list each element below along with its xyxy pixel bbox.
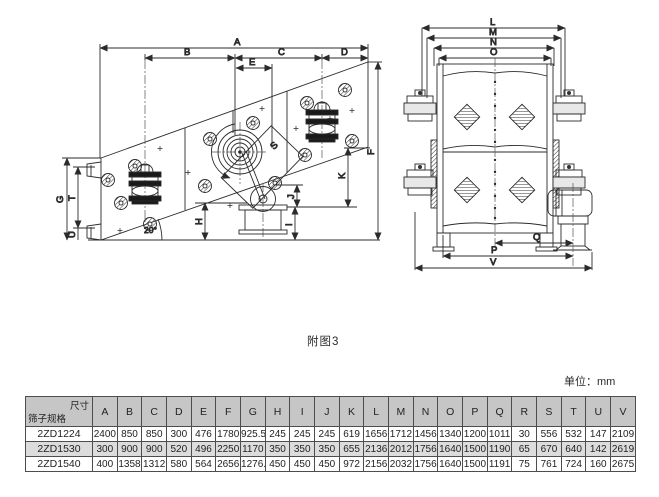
dim-label-f: F — [366, 149, 377, 155]
value-cell-b: 1358 — [117, 457, 142, 472]
value-cell-k: 619 — [339, 427, 364, 442]
column-header-n: N — [413, 397, 438, 427]
model-cell: 2ZD1540 — [26, 457, 93, 472]
side-view-drawing: A B C D E F K J I — [55, 37, 382, 240]
value-cell-r: 75 — [512, 457, 537, 472]
value-cell-t: 724 — [561, 457, 586, 472]
model-cell: 2ZD1224 — [26, 427, 93, 442]
value-cell-o: 1640 — [438, 442, 463, 457]
value-cell-a: 2400 — [93, 427, 118, 442]
value-cell-s: 556 — [537, 427, 562, 442]
value-cell-q: 1190 — [487, 442, 512, 457]
unit-note: 单位：mm — [564, 373, 615, 389]
value-cell-u: 142 — [586, 442, 611, 457]
front-view-drawing: L M N O Q P V — [404, 17, 592, 270]
column-header-f: F — [216, 397, 241, 427]
value-cell-m: 2032 — [389, 457, 414, 472]
dim-label-c: C — [278, 47, 285, 58]
dim-label-h: H — [194, 218, 205, 225]
value-cell-m: 1712 — [389, 427, 414, 442]
value-cell-p: 1500 — [463, 442, 488, 457]
value-cell-i: 450 — [290, 457, 315, 472]
bolt-hole-icons — [102, 84, 359, 231]
value-cell-t: 532 — [561, 427, 586, 442]
column-header-q: Q — [487, 397, 512, 427]
column-header-j: J — [315, 397, 340, 427]
dim-label-k: K — [337, 172, 348, 179]
table-row: 2ZD122424008508503004761780925.524524524… — [26, 427, 636, 442]
column-header-l: L — [364, 397, 389, 427]
value-cell-g: 1276.5 — [241, 457, 266, 472]
corner-label-dimension: 尺寸 — [70, 398, 89, 412]
column-header-t: T — [561, 397, 586, 427]
value-cell-d: 300 — [167, 427, 192, 442]
value-cell-c: 1312 — [142, 457, 167, 472]
value-cell-g: 1170 — [241, 442, 266, 457]
value-cell-e: 564 — [191, 457, 216, 472]
value-cell-b: 850 — [117, 427, 142, 442]
value-cell-q: 1011 — [487, 427, 512, 442]
dim-label-d: D — [341, 47, 348, 58]
value-cell-n: 1456 — [413, 427, 438, 442]
value-cell-r: 65 — [512, 442, 537, 457]
value-cell-f: 1780 — [216, 427, 241, 442]
value-cell-l: 2136 — [364, 442, 389, 457]
column-header-v: V — [611, 397, 636, 427]
value-cell-o: 1340 — [438, 427, 463, 442]
value-cell-a: 400 — [93, 457, 118, 472]
column-header-e: E — [191, 397, 216, 427]
dim-label-o: O — [490, 47, 497, 58]
table-header-row: 尺寸 筛子规格 ABCDEFGHIJKLMNOPQRSTUV — [26, 397, 636, 427]
value-cell-d: 520 — [167, 442, 192, 457]
value-cell-k: 972 — [339, 457, 364, 472]
corner-label-model: 筛子规格 — [28, 411, 66, 425]
value-cell-b: 900 — [117, 442, 142, 457]
value-cell-k: 655 — [339, 442, 364, 457]
value-cell-v: 2109 — [611, 427, 636, 442]
value-cell-v: 2675 — [611, 457, 636, 472]
value-cell-s: 761 — [537, 457, 562, 472]
column-header-d: D — [167, 397, 192, 427]
value-cell-v: 2619 — [611, 442, 636, 457]
column-header-m: M — [389, 397, 414, 427]
dim-label-t: T — [67, 195, 78, 201]
value-cell-c: 900 — [142, 442, 167, 457]
column-header-i: I — [290, 397, 315, 427]
column-header-a: A — [93, 397, 118, 427]
value-cell-n: 1756 — [413, 442, 438, 457]
column-header-p: P — [463, 397, 488, 427]
vibrator-pulley — [211, 124, 262, 178]
figure-caption: 附图3 — [307, 333, 339, 349]
dimension-table: 尺寸 筛子规格 ABCDEFGHIJKLMNOPQRSTUV 2ZD122424… — [25, 396, 636, 472]
catalog-page: A B C D E F K J I — [0, 0, 659, 497]
dim-label-p: P — [491, 245, 497, 256]
column-header-s: S — [537, 397, 562, 427]
table-corner-cell: 尺寸 筛子规格 — [26, 397, 93, 427]
value-cell-j: 245 — [315, 427, 340, 442]
value-cell-h: 245 — [265, 427, 290, 442]
value-cell-t: 640 — [561, 442, 586, 457]
dim-label-q: Q — [533, 232, 540, 243]
value-cell-f: 2656 — [216, 457, 241, 472]
dim-label-g: G — [55, 196, 66, 203]
value-cell-i: 245 — [290, 427, 315, 442]
value-cell-m: 2012 — [389, 442, 414, 457]
dim-label-s: S — [268, 140, 280, 152]
value-cell-l: 1656 — [364, 427, 389, 442]
value-cell-j: 450 — [315, 457, 340, 472]
column-header-g: G — [241, 397, 266, 427]
value-cell-i: 350 — [290, 442, 315, 457]
value-cell-n: 1756 — [413, 457, 438, 472]
value-cell-p: 1500 — [463, 457, 488, 472]
technical-drawings: A B C D E F K J I — [0, 0, 659, 330]
dim-label-i: I — [284, 223, 295, 226]
dim-label-u: U — [67, 231, 78, 238]
dim-label-j: J — [286, 194, 297, 199]
table-row: 2ZD1530300900900520496225011703503503506… — [26, 442, 636, 457]
column-header-c: C — [142, 397, 167, 427]
column-header-k: K — [339, 397, 364, 427]
value-cell-r: 30 — [512, 427, 537, 442]
column-header-o: O — [438, 397, 463, 427]
value-cell-e: 476 — [191, 427, 216, 442]
value-cell-l: 2156 — [364, 457, 389, 472]
value-cell-g: 925.5 — [241, 427, 266, 442]
column-header-h: H — [265, 397, 290, 427]
value-cell-d: 580 — [167, 457, 192, 472]
value-cell-c: 850 — [142, 427, 167, 442]
column-header-u: U — [586, 397, 611, 427]
angle-label: 20° — [144, 225, 157, 235]
dim-label-e: E — [249, 57, 255, 68]
dim-label-a: A — [234, 37, 241, 48]
value-cell-q: 1191 — [487, 457, 512, 472]
value-cell-o: 1640 — [438, 457, 463, 472]
value-cell-j: 350 — [315, 442, 340, 457]
table-row: 2ZD15404001358131258056426561276.5450450… — [26, 457, 636, 472]
column-header-r: R — [512, 397, 537, 427]
value-cell-f: 2250 — [216, 442, 241, 457]
value-cell-u: 147 — [586, 427, 611, 442]
value-cell-a: 300 — [93, 442, 118, 457]
dim-label-b: B — [184, 47, 190, 58]
value-cell-e: 496 — [191, 442, 216, 457]
column-header-b: B — [117, 397, 142, 427]
value-cell-p: 1200 — [463, 427, 488, 442]
model-cell: 2ZD1530 — [26, 442, 93, 457]
dim-label-v: V — [490, 257, 497, 268]
value-cell-u: 160 — [586, 457, 611, 472]
value-cell-h: 350 — [265, 442, 290, 457]
value-cell-s: 670 — [537, 442, 562, 457]
value-cell-h: 450 — [265, 457, 290, 472]
